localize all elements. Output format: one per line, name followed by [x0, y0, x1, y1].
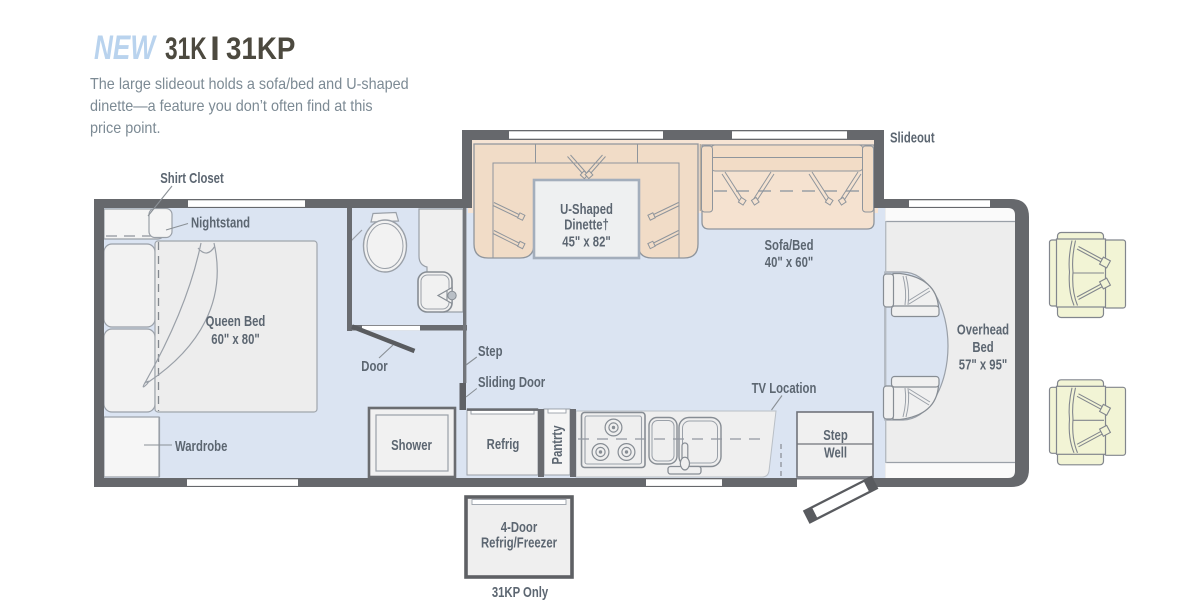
- svg-text:45ʺ x 82ʺ: 45ʺ x 82ʺ: [562, 233, 610, 250]
- svg-text:Shower: Shower: [391, 437, 432, 454]
- svg-text:4-Door: 4-Door: [501, 519, 537, 536]
- svg-text:dinette—a feature you don’t of: dinette—a feature you don’t often find a…: [90, 98, 373, 116]
- svg-text:Well: Well: [824, 444, 847, 461]
- svg-text:U-Shaped: U-Shaped: [560, 201, 613, 218]
- svg-text:Overhead: Overhead: [957, 321, 1009, 338]
- svg-text:NEW: NEW: [94, 30, 157, 67]
- svg-text:Refrig/Freezer: Refrig/Freezer: [481, 534, 557, 551]
- svg-text:Shirt Closet: Shirt Closet: [160, 170, 224, 187]
- svg-text:40ʺ x 60ʺ: 40ʺ x 60ʺ: [765, 254, 813, 271]
- svg-text:60ʺ x 80ʺ: 60ʺ x 80ʺ: [211, 331, 259, 348]
- svg-text:Bed: Bed: [972, 339, 993, 356]
- svg-text:Queen Bed: Queen Bed: [206, 313, 266, 330]
- svg-text:Door: Door: [361, 358, 387, 375]
- svg-text:31KP: 31KP: [226, 31, 295, 66]
- svg-text:Slideout: Slideout: [890, 129, 935, 146]
- svg-text:Wardrobe: Wardrobe: [175, 438, 227, 455]
- svg-text:Refrig: Refrig: [487, 436, 520, 453]
- svg-text:57ʺ x 95ʺ: 57ʺ x 95ʺ: [959, 356, 1007, 373]
- svg-text:31K: 31K: [165, 30, 207, 66]
- svg-text:Sofa/Bed: Sofa/Bed: [764, 237, 813, 254]
- svg-text:The large slideout holds a sof: The large slideout holds a sofa/bed and …: [90, 76, 409, 94]
- svg-text:Step: Step: [823, 427, 848, 444]
- svg-text:Sliding Door: Sliding Door: [478, 374, 545, 391]
- svg-text:TV Location: TV Location: [752, 380, 817, 397]
- svg-text:price point.: price point.: [90, 120, 160, 138]
- svg-text:Pantrty: Pantrty: [549, 425, 566, 465]
- svg-text:Nightstand: Nightstand: [191, 214, 250, 231]
- svg-text:31KP Only: 31KP Only: [492, 584, 549, 601]
- svg-text:Dinette†: Dinette†: [564, 216, 609, 233]
- svg-text:Step: Step: [478, 343, 503, 360]
